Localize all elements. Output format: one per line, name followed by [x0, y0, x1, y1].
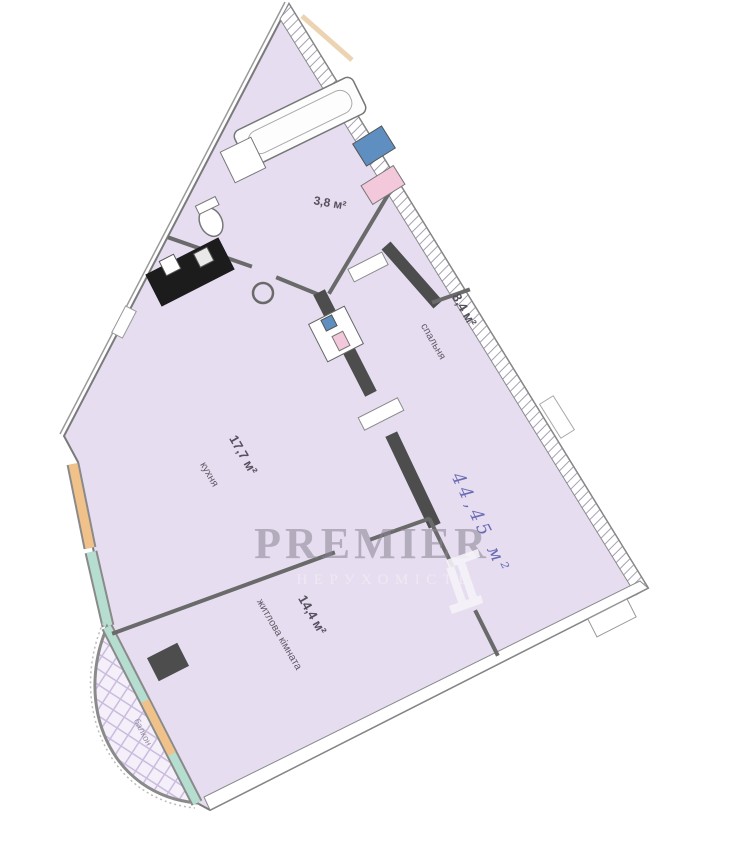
floor-plan-drawing: 17,7 м² кухня 14,4 м² житлова кімната 8,… — [0, 0, 741, 855]
watermark-subtitle-text: НЕРУХОМІСТЬ — [296, 572, 473, 588]
floor-plan-page: 17,7 м² кухня 14,4 м² житлова кімната 8,… — [0, 0, 741, 855]
